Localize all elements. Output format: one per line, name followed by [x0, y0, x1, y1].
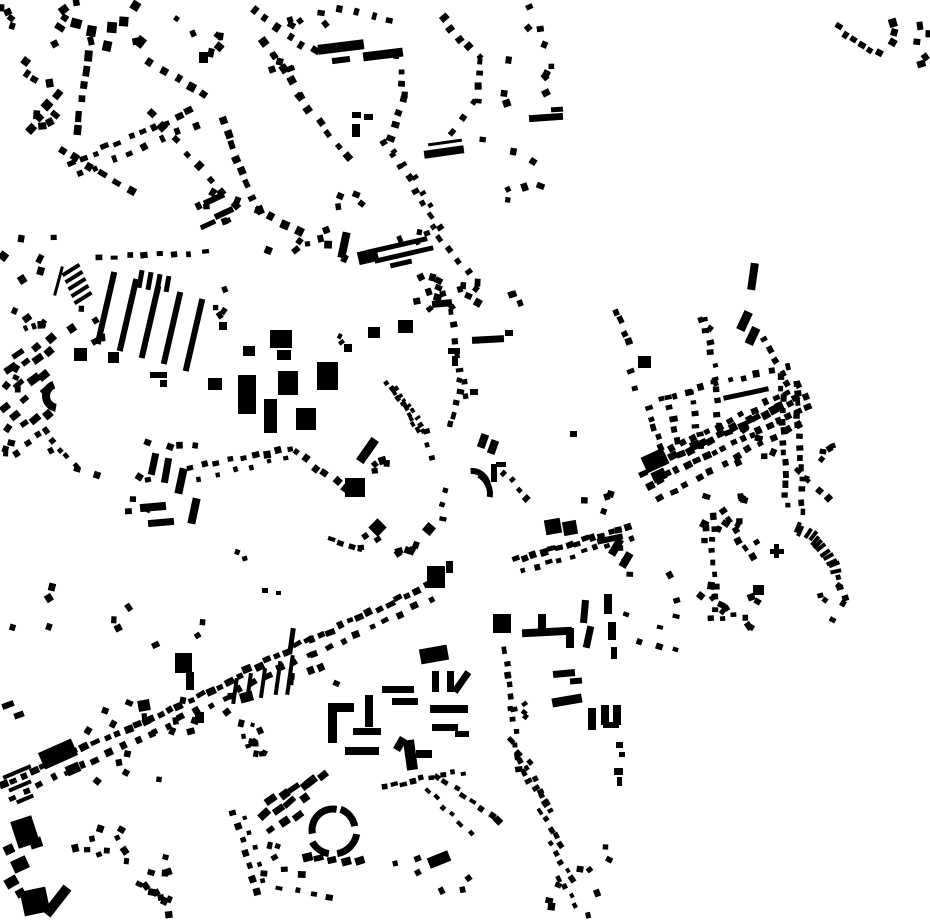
map-canvas	[0, 0, 930, 924]
figure-ground-map	[0, 0, 930, 924]
